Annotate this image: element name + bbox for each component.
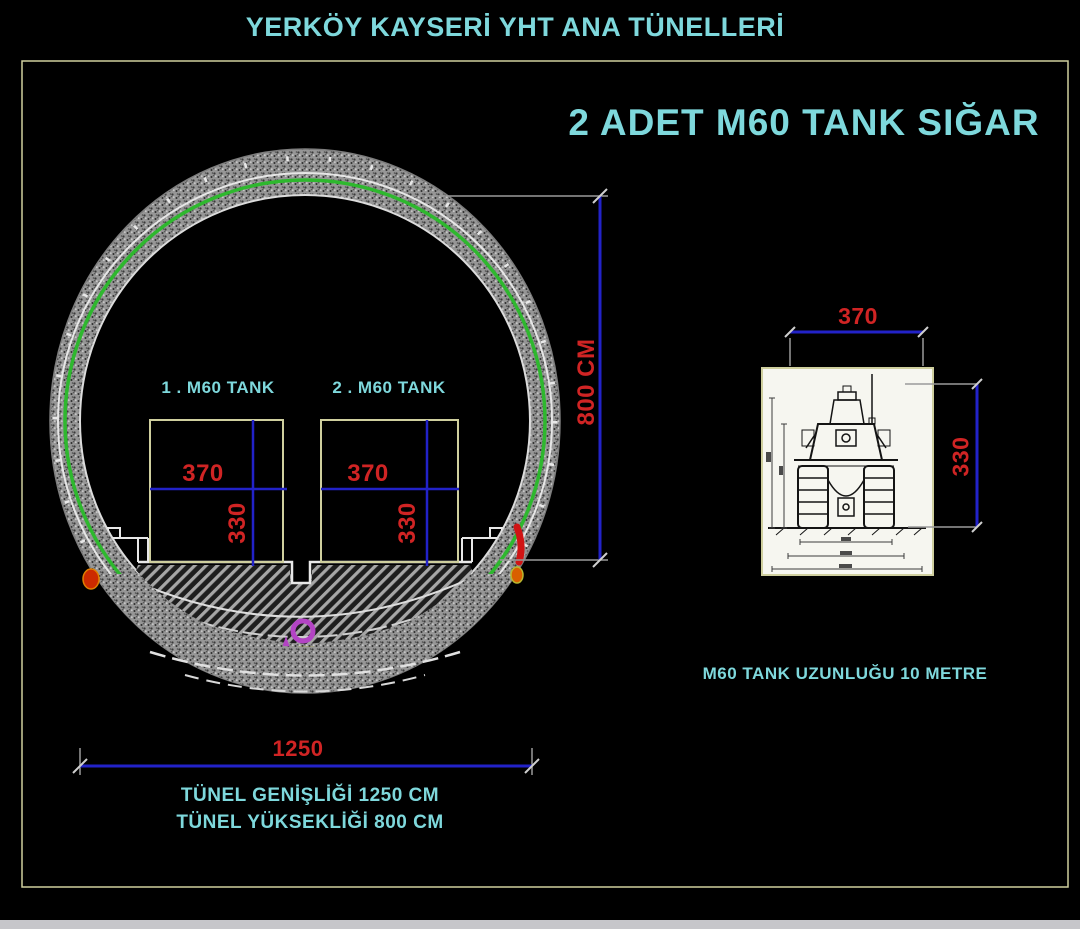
tunnel-width-dim: 1250 [268,736,328,762]
cad-canvas: YERKÖY KAYSERİ YHT ANA TÜNELLERİ 2 ADET … [0,0,1080,929]
tank-view-panel [762,368,933,575]
tank-2-height-dim: 330 [394,498,422,548]
page-title: YERKÖY KAYSERİ YHT ANA TÜNELLERİ [0,12,1030,43]
bottom-edge-strip [0,920,1080,929]
tunnel-width-note: TÜNEL GENİŞLİĞİ 1250 CM [110,785,510,807]
tank-length-caption: M60 TANK UZUNLUĞU 10 METRE [645,664,1045,684]
tank-view-width-dim: 370 [832,303,884,330]
tank-1-label: 1 . M60 TANK [148,378,288,398]
tunnel-height-dim: 800 CM [573,327,601,437]
tank-1-width-dim: 370 [178,460,228,488]
drain-blob-left [83,569,99,589]
tank-2-label: 2 . M60 TANK [318,378,460,398]
headline: 2 ADET M60 TANK SIĞAR [564,102,1044,144]
tank-1-height-dim: 330 [224,498,252,548]
tank-view-height-dim: 330 [948,427,975,487]
dim-line-tank-370 [785,327,928,366]
drain-blob-right [511,567,523,583]
tank-2-width-dim: 370 [343,460,393,488]
tunnel-height-note: TÜNEL YÜKSEKLİĞİ 800 CM [110,812,510,834]
red-mark-right [517,527,521,562]
